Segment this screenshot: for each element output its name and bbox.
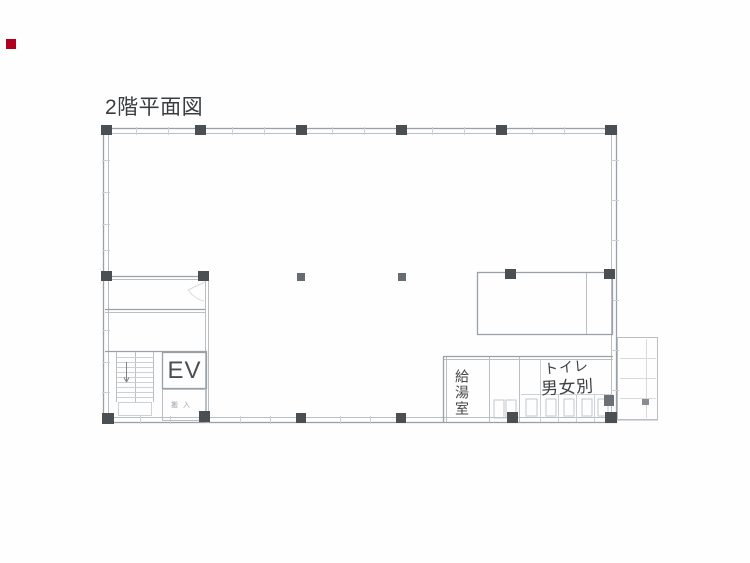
- right-room-walls: [478, 273, 613, 335]
- toilet-duct: [604, 395, 614, 406]
- kitchenette-label: 給湯室: [450, 364, 474, 422]
- annex-steps: [620, 339, 656, 418]
- stair-landing: [119, 403, 152, 416]
- door-swing-arc: [188, 282, 205, 301]
- floor-plan-page: 2階平面図 EV 給湯室 トイレ 男女別 搬入: [0, 0, 750, 563]
- toilet-gender-label: 男女別: [540, 372, 594, 400]
- page-title: 2階平面図: [105, 91, 203, 121]
- right-room-outline: [478, 273, 613, 335]
- exterior-stair-annex: [618, 338, 658, 420]
- service-entry-label: 搬入: [171, 400, 195, 410]
- red-marker-square: [6, 39, 16, 49]
- annex-fixture: [642, 399, 649, 405]
- free-standing-columns: [297, 273, 406, 281]
- floor-plan-drawing: [0, 0, 750, 563]
- elevator-label: EV: [162, 352, 207, 389]
